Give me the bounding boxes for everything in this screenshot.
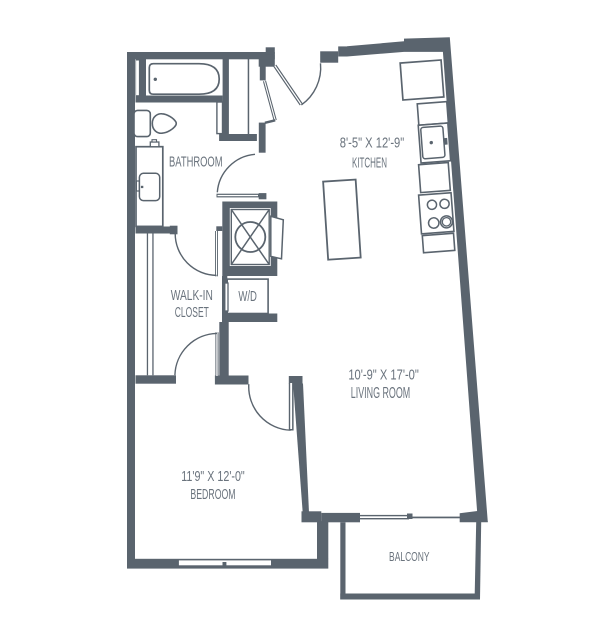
svg-text:CLOSET: CLOSET (175, 304, 209, 321)
svg-text:BATHROOM: BATHROOM (169, 154, 223, 171)
svg-text:LIVING ROOM: LIVING ROOM (351, 385, 411, 402)
svg-text:KITCHEN: KITCHEN (352, 154, 387, 171)
svg-text:11'9" X 12'-0": 11'9" X 12'-0" (181, 468, 245, 485)
svg-text:W/D: W/D (238, 288, 257, 305)
svg-text:BALCONY: BALCONY (389, 549, 430, 564)
svg-text:8'-5" X 12'-9": 8'-5" X 12'-9" (340, 134, 405, 151)
svg-text:10'-9" X 17'-0": 10'-9" X 17'-0" (348, 367, 419, 384)
svg-text:BEDROOM: BEDROOM (190, 486, 235, 503)
svg-text:WALK-IN: WALK-IN (171, 287, 213, 304)
